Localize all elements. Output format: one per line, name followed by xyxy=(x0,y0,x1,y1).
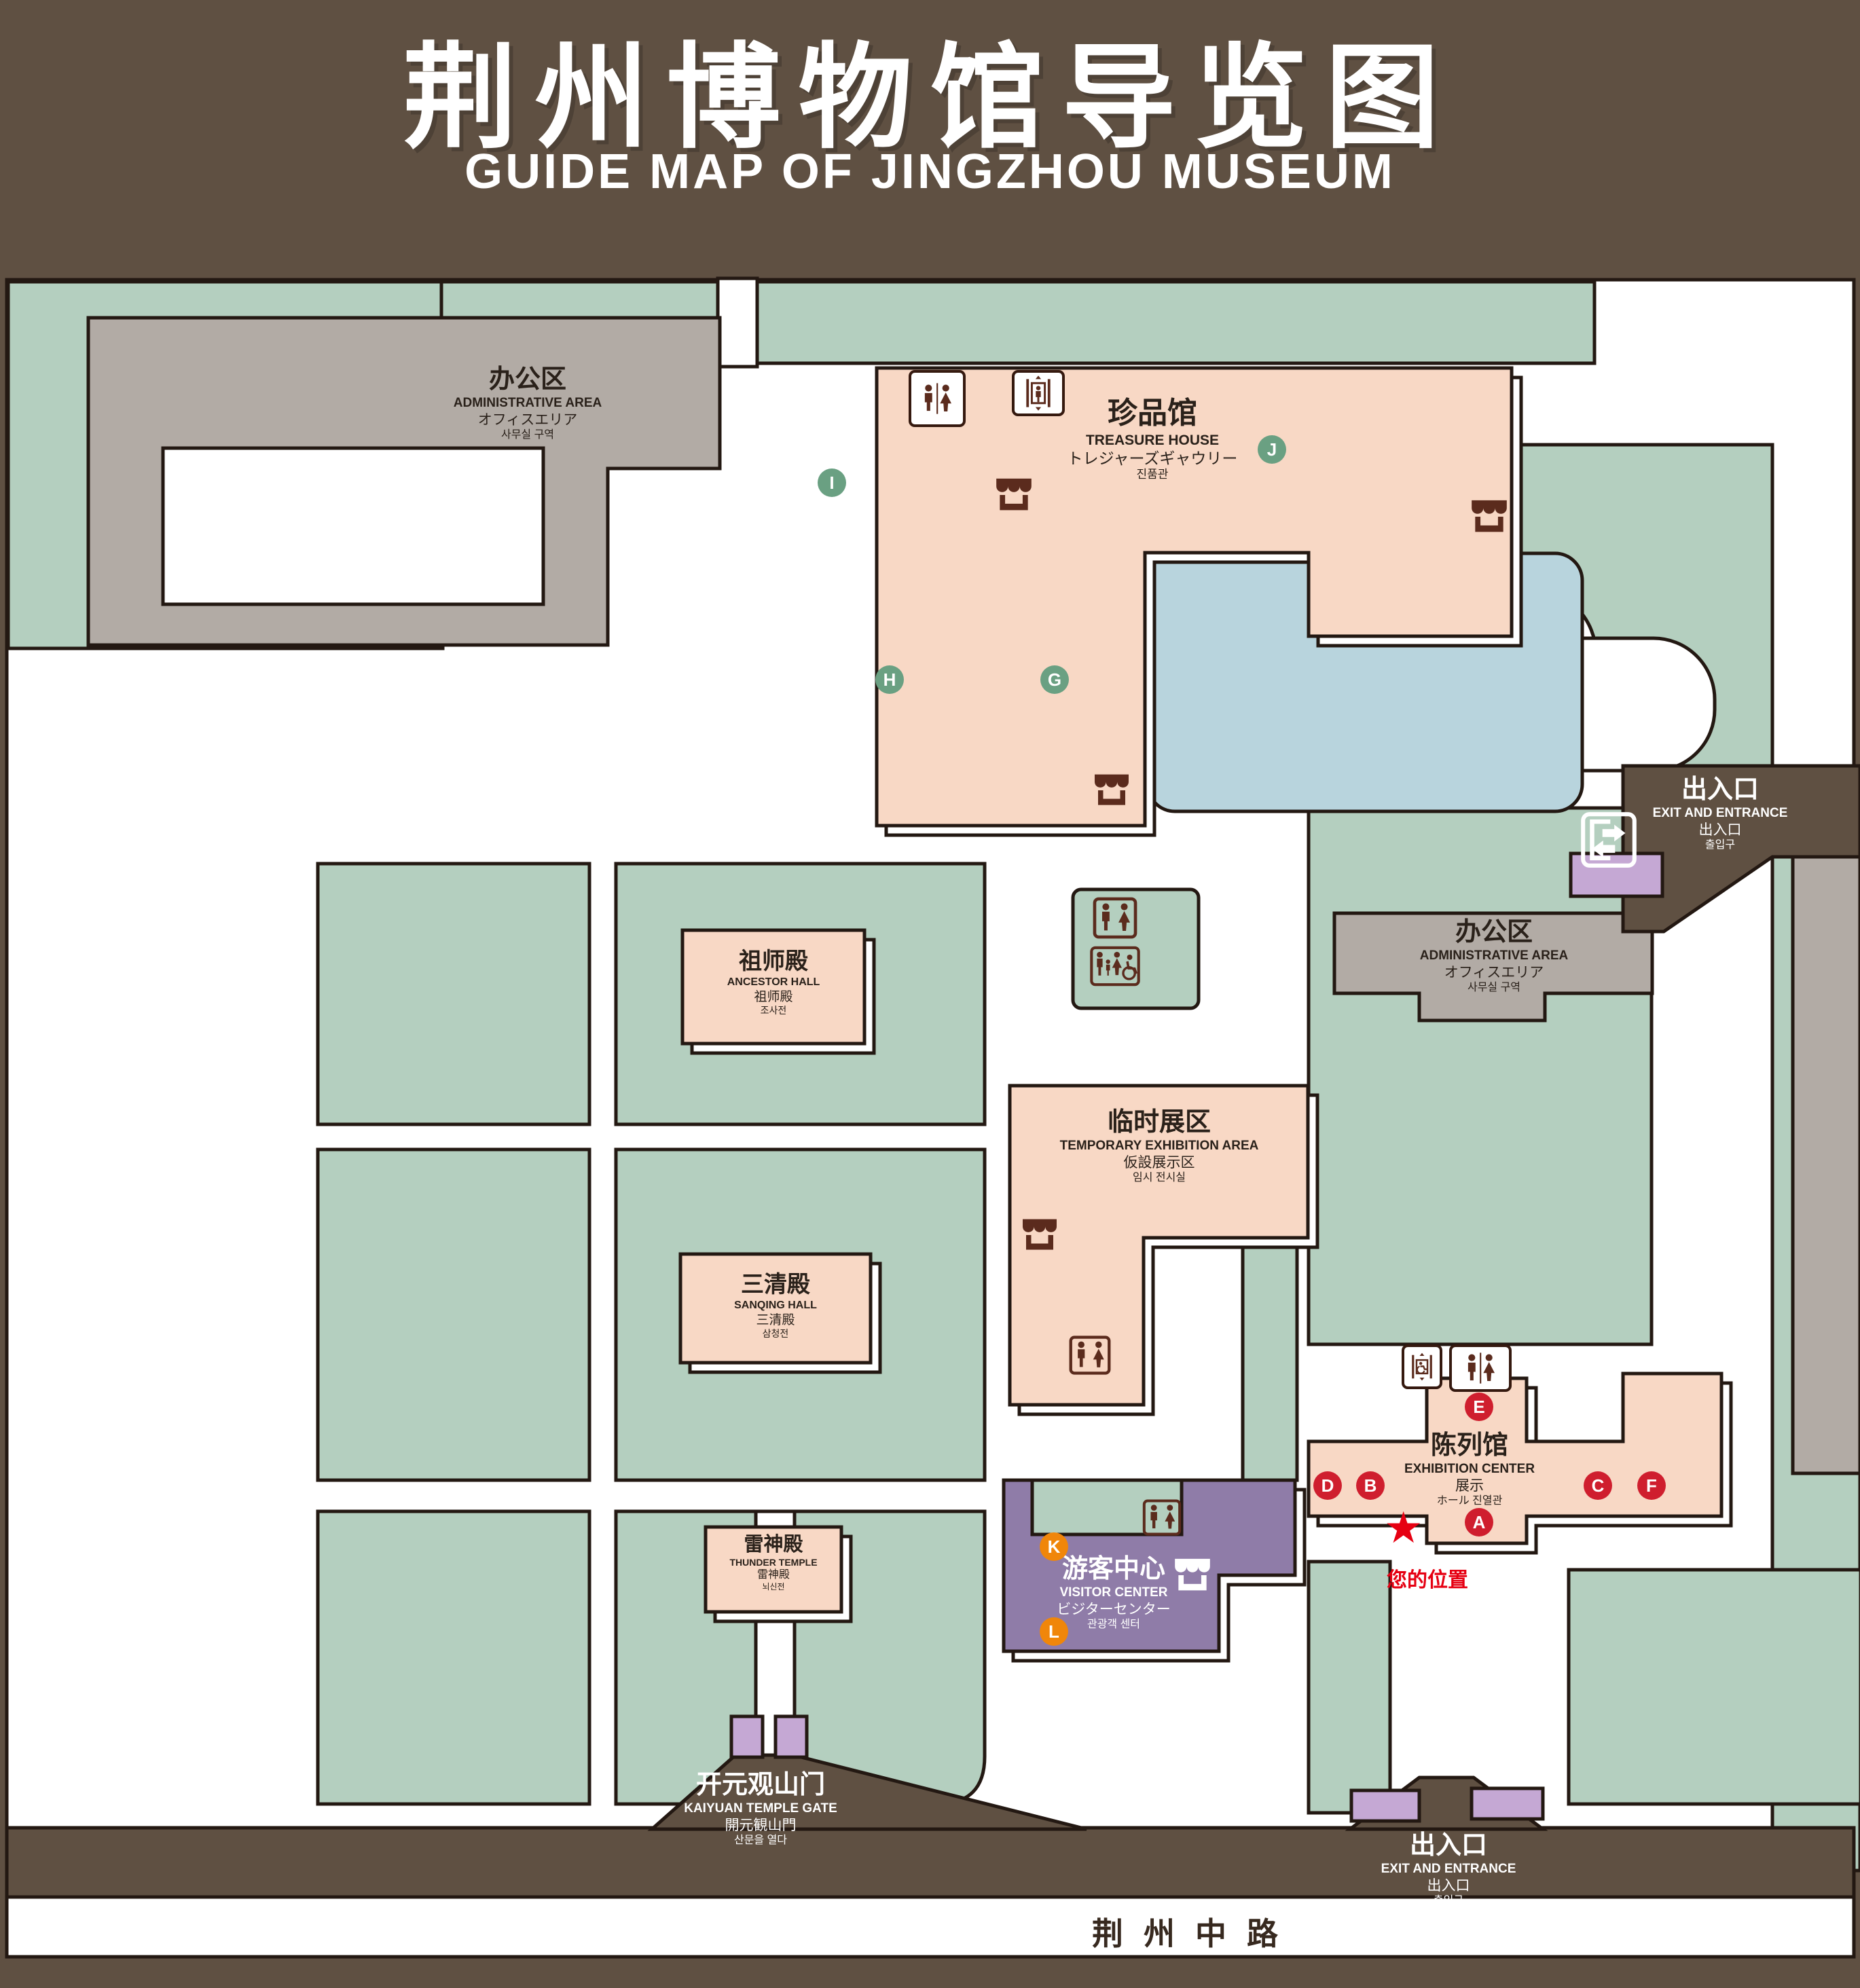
your-location-label: 您的位置 xyxy=(1346,1563,1509,1593)
building-label-admin-east: 办公区 ADMINISTRATIVE AREA オフィスエリア 사무실 구역 xyxy=(1348,917,1640,995)
map-badge-e: E xyxy=(1465,1393,1493,1421)
restrooms-icon xyxy=(909,370,966,427)
exit-label-south: 出入口 EXIT AND ENTRANCE 出入口 출입구 xyxy=(1357,1830,1540,1908)
store-icon xyxy=(1091,771,1132,809)
road-label: 荆州中路 xyxy=(971,1909,1419,1954)
exit-entrance-icon xyxy=(1580,811,1638,869)
restrooms-icon xyxy=(1092,896,1138,940)
building-label-admin-nw: 办公区 ADMINISTRATIVE AREA オフィスエリア 사무실 구역 xyxy=(378,364,677,442)
map-badge-g: G xyxy=(1040,665,1069,694)
map-badge-a: A xyxy=(1465,1508,1493,1536)
restrooms-icon xyxy=(1449,1344,1512,1392)
exit-label-east: 出入口 EXIT AND ENTRANCE 出入口 출입구 xyxy=(1628,774,1812,852)
store-icon xyxy=(1171,1555,1214,1596)
map-badge-i: I xyxy=(818,468,846,497)
elevator-icon xyxy=(1012,370,1065,416)
guide-map-poster: 荆州博物馆导览图 GUIDE MAP OF JINGZHOU MUSEUM xyxy=(0,0,1860,1988)
map-badge-c: C xyxy=(1584,1471,1612,1500)
map-badge-l: L xyxy=(1040,1617,1068,1646)
building-label-temporary-area: 临时展区 TEMPORARY EXHIBITION AREA 仮設展示区 임시 … xyxy=(1010,1107,1309,1185)
building-label-thunder-temple: 雷神殿 THUNDER TEMPLE 雷神殿 뇌신전 xyxy=(706,1533,841,1592)
map-badge-h: H xyxy=(875,665,904,694)
restrooms-icon xyxy=(1141,1498,1183,1537)
map-badge-d: D xyxy=(1313,1471,1342,1500)
store-icon xyxy=(1019,1215,1061,1255)
building-label-ancestor-hall: 祖师殿 ANCESTOR HALL 祖师殿 조사전 xyxy=(682,948,864,1016)
building-label-exhibition-center: 陈列馆 EXHIBITION CENTER 展示 ホール 진열관 xyxy=(1368,1430,1571,1508)
store-icon xyxy=(1468,497,1510,536)
accessible-elevator-icon xyxy=(1402,1344,1442,1389)
map-badge-k: K xyxy=(1040,1532,1068,1561)
building-label-sanqing-hall: 三清殿 SANQING HALL 三清殿 삼청전 xyxy=(680,1271,871,1340)
gate-label: 开元观山门 KAIYUAN TEMPLE GATE 開元観山門 산문을 열다 xyxy=(642,1769,879,1847)
restrooms-icon xyxy=(1068,1328,1112,1382)
map-badge-f: F xyxy=(1637,1471,1666,1500)
your-location-star: ★ xyxy=(1384,1506,1423,1549)
family-restrooms-icon xyxy=(1085,945,1145,987)
map-badge-b: B xyxy=(1356,1471,1385,1500)
store-icon xyxy=(993,475,1035,515)
map-badge-j: J xyxy=(1258,435,1286,464)
